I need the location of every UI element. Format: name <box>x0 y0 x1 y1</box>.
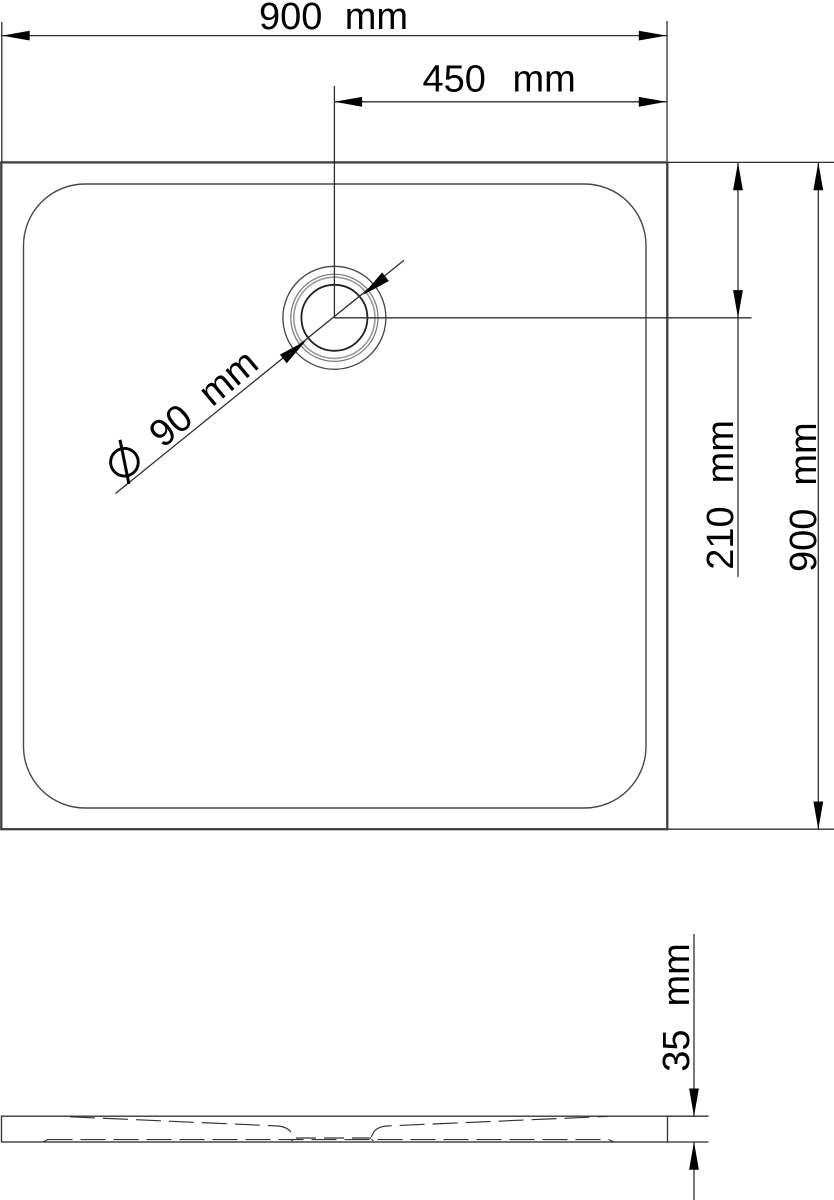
svg-text:210mm: 210mm <box>700 420 742 570</box>
svg-text:35mm: 35mm <box>656 943 698 1072</box>
svg-text:900mm: 900mm <box>259 0 408 38</box>
svg-text:90mm: 90mm <box>142 342 267 456</box>
svg-text:450mm: 450mm <box>423 58 576 100</box>
